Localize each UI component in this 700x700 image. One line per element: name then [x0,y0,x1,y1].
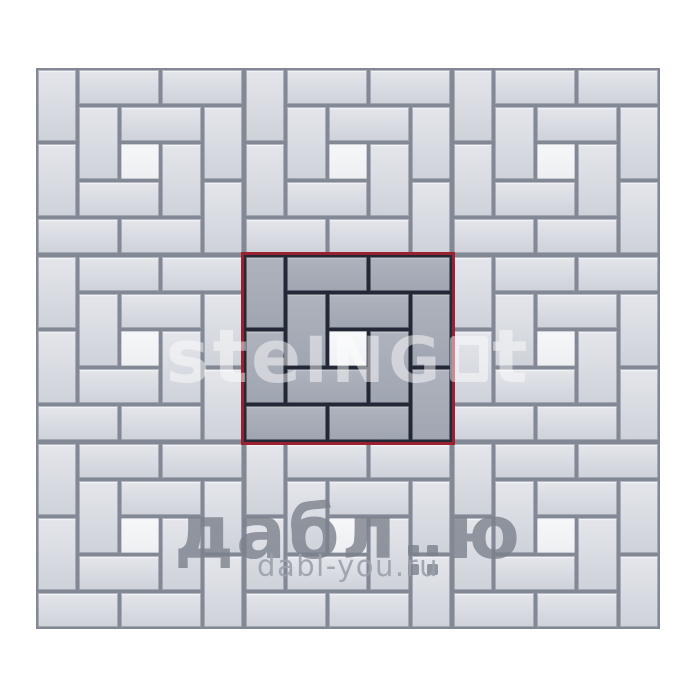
paver-brick [79,107,118,179]
paver-brick [38,219,118,253]
paver-brick [578,70,658,104]
paver-brick [79,444,159,478]
paver-brick [162,144,201,216]
paver-square [121,144,160,178]
paver-brick [495,107,534,179]
paver-brick [162,70,242,104]
paver-brick [38,406,118,440]
paver-brick [537,593,617,627]
paver-brick [370,144,409,216]
paver-brick [620,107,659,179]
paver-brick [454,70,493,142]
paver-brick [38,144,77,216]
paver-brick [329,406,409,440]
paver-brick [454,144,493,216]
square-o-icon [450,336,488,382]
paver-brick [412,107,451,179]
paver-square [537,144,576,178]
paver-brick [246,406,326,440]
paver-brick [454,257,493,329]
paver-brick [121,406,201,440]
paver-brick [287,444,367,478]
paver-brick [287,107,326,179]
paver-brick [162,257,242,291]
paver-brick [495,182,575,216]
paver-brick [121,107,201,141]
paver-brick [495,257,575,291]
paver-brick [79,70,159,104]
paver-brick [287,70,367,104]
paver-brick [121,593,201,627]
paver-brick [370,444,450,478]
paver-brick [454,406,534,440]
paver-brick [578,257,658,291]
paver-brick [246,219,326,253]
paver-brick [246,144,285,216]
paver-brick [454,219,534,253]
pattern-module [452,68,660,255]
paver-brick [329,107,409,141]
paver-brick [38,593,118,627]
paver-brick [79,182,159,216]
paver-brick [537,406,617,440]
pattern-module [244,68,452,255]
paver-brick [495,70,575,104]
paver-brick [578,444,658,478]
pattern-module [36,68,244,255]
watermark-steingot: steINGt [36,320,660,394]
paver-brick [287,182,367,216]
paver-brick [79,257,159,291]
paver-brick [204,107,243,179]
paver-brick [329,593,409,627]
paver-brick [578,144,617,216]
paver-brick [204,182,243,254]
paver-brick [329,219,409,253]
paver-brick [38,70,77,142]
paver-brick [246,593,326,627]
paver-brick [38,257,77,329]
paver-square [329,144,368,178]
paver-brick [162,444,242,478]
paver-brick [454,593,534,627]
paver-brick [537,219,617,253]
paver-brick [370,70,450,104]
paver-brick [620,182,659,254]
paver-brick [412,182,451,254]
paver-brick [537,107,617,141]
watermark-steingot-text-3: t [492,314,530,400]
watermark-steingot-text-2: ING [304,324,444,397]
watermark-site-url: dabl-you.ru [36,552,660,581]
watermark-steingot-text-1: ste [166,314,305,400]
paver-brick [246,70,285,142]
paver-brick [370,257,450,291]
paver-brick [495,444,575,478]
paver-brick [121,219,201,253]
paving-layout-image: steINGt даблю dabl-you.ru [0,0,700,700]
paver-brick [287,257,367,291]
